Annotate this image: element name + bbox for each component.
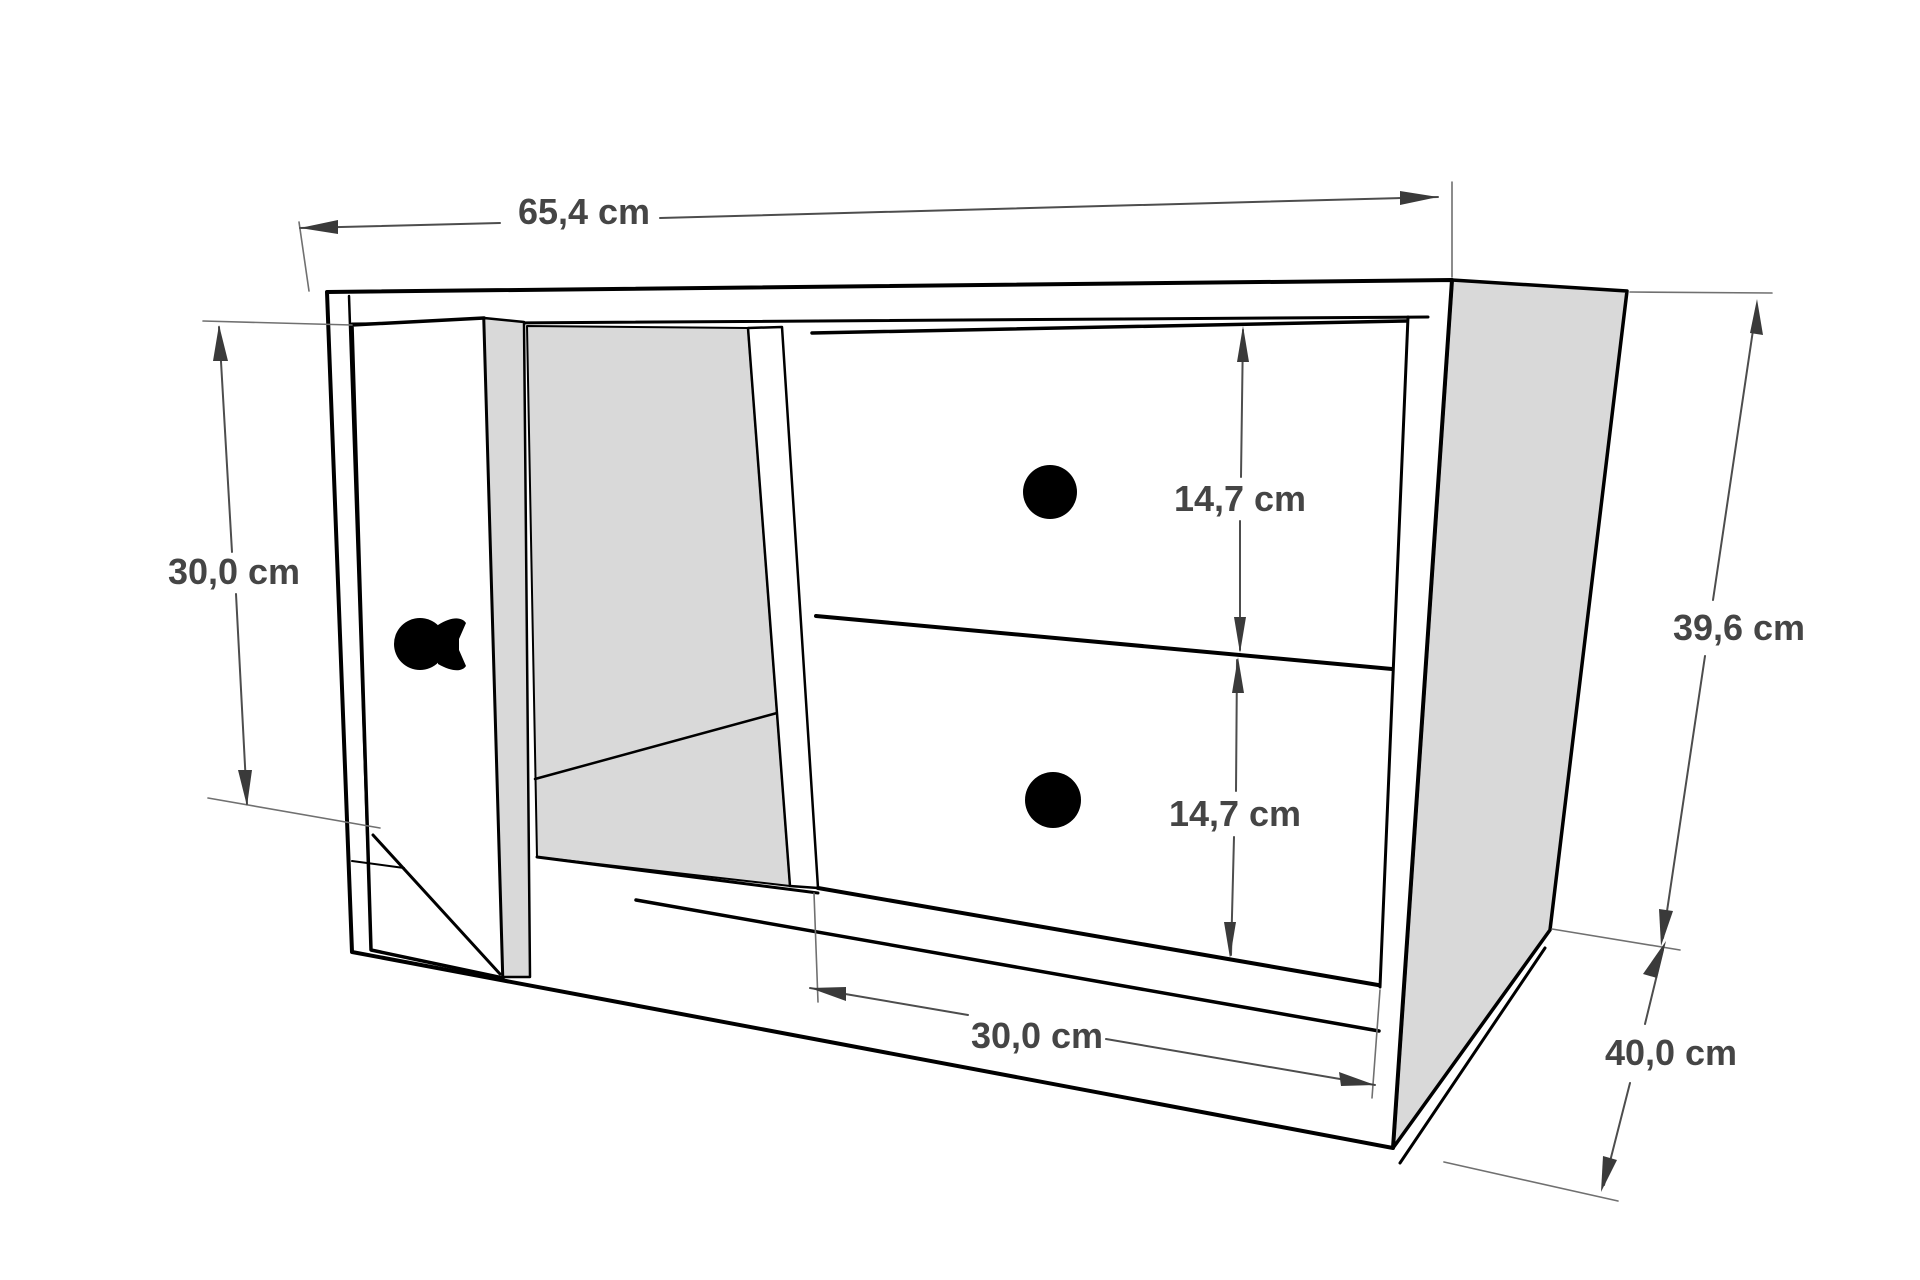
cabinet-diagram-svg: 65,4 cm 30,0 cm 14,7 cm 14,7 cm (0, 0, 1920, 1280)
compartment-interior (527, 326, 790, 886)
dim-label-width-top: 65,4 cm (518, 191, 650, 232)
extension-line (299, 222, 309, 291)
dim-width-top: 65,4 cm (299, 182, 1452, 291)
dim-label-door-height: 30,0 cm (168, 551, 300, 592)
dim-label-lower-drawer-height: 14,7 cm (1169, 793, 1301, 834)
dim-label-upper-drawer-height: 14,7 cm (1174, 478, 1306, 519)
extension-line (1444, 1162, 1618, 1201)
dimension-line (1713, 310, 1756, 600)
dim-label-depth: 40,0 cm (1605, 1032, 1737, 1073)
arrow-down-icon (1601, 1156, 1617, 1192)
dimension-line (660, 197, 1438, 218)
arrow-down-icon (238, 770, 252, 806)
arrow-left-icon (300, 220, 338, 234)
furniture-dimension-drawing: 65,4 cm 30,0 cm 14,7 cm 14,7 cm (0, 0, 1920, 1280)
dim-label-total-height: 39,6 cm (1673, 607, 1805, 648)
arrow-up-icon (1750, 299, 1763, 335)
dim-label-drawer-width: 30,0 cm (971, 1015, 1103, 1056)
arrow-up-icon (213, 325, 228, 361)
extension-line (1630, 292, 1772, 293)
arrow-right-icon (1400, 191, 1438, 205)
arrow-down-icon (1659, 909, 1673, 946)
lower-drawer-knob-icon (1025, 772, 1081, 828)
open-door (352, 318, 530, 978)
upper-drawer-knob-icon (1023, 465, 1077, 519)
dimension-line (1663, 656, 1705, 938)
